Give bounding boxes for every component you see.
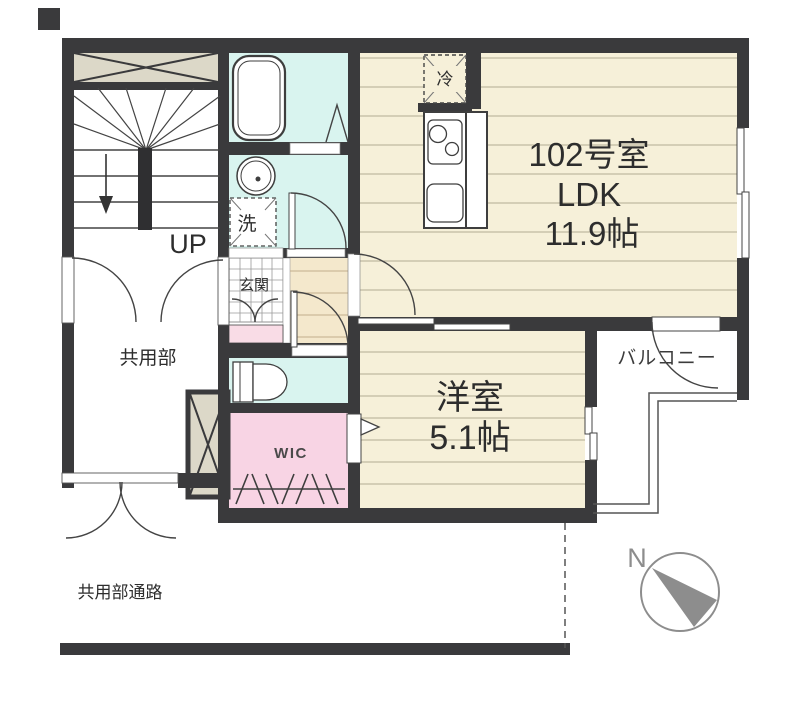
wall-bottom [218,508,597,523]
ldk-label: LDK [557,176,621,213]
shoe-cabinet [229,325,283,343]
wall-top [62,38,749,53]
stair-direction-arrow [99,196,113,214]
common-area-south-door-sill [62,473,178,483]
balcony-door-leaf [652,317,720,331]
sliding-door-panel-2 [434,324,510,330]
western-room-size-label: 5.1帖 [429,419,510,457]
ldk-size-label: 11.9帖 [545,215,640,252]
compass: N [627,543,719,631]
washroom-door-sill [287,249,345,257]
balcony-railing-inner [593,393,737,504]
balcony-label: バルコニー [617,348,717,369]
shafts [74,53,228,497]
toilet-tank [233,362,253,402]
wall-kitchen-stub [418,103,472,112]
common-south-door-arc-right [120,482,176,538]
western-room-label: 洋室 [436,379,504,417]
sliding-door-panel-1 [358,318,434,324]
staircase [74,88,220,230]
unit-front-door-opening [218,257,229,325]
washing-machine-label: 洗 [237,213,256,235]
floor-plan-page: N 102号室 LDK 11.9帖 洋室 5.1帖 バルコニー 共用部 共用部通… [0,0,800,705]
wic-label: WIC [274,445,308,462]
ldk-window-pane-2 [742,192,749,258]
vanity-sink-drain [256,177,261,182]
unit-front-door-arc [161,260,223,322]
toilet-bowl [253,364,287,400]
wall-toilet-bottom [229,403,348,413]
wall-common-bottom [178,473,218,488]
stairs-up-label: UP [169,229,207,259]
stair-winder-lines [74,88,220,150]
toilet-door-sill [292,345,347,356]
common-passage-label: 共用部通路 [78,583,163,602]
wall-duct-divider [70,82,223,90]
common-area-entry-opening [62,257,74,323]
vanity-sink [237,157,275,195]
wall-fridge-stub [466,41,481,109]
entrance-label: 玄関 [239,277,269,294]
western-window-pane-1 [585,407,592,434]
compass-needle [652,568,717,627]
kitchen-counter-edge [466,112,487,228]
room-number-label: 102号室 [528,136,649,173]
common-area-entry-door-arc [72,258,136,322]
bathroom-door-sill [290,143,340,154]
bathtub [233,56,285,140]
refrigerator-label: 冷 [437,70,454,89]
stair-center-rail [138,148,152,230]
common-south-door-arc-left [66,482,122,538]
wall-corner-pillar [38,8,60,30]
toilet-door-leaf [291,291,297,347]
ldk-window-pane-1 [737,128,744,194]
western-window-pane-2 [590,433,597,460]
ldk-door-opening [348,254,360,316]
washroom-door-leaf [289,193,295,249]
ldk-floor [360,53,737,317]
common-area-label: 共用部 [119,347,176,369]
balcony-railing-outer [593,401,737,513]
site-boundary-bar [60,643,570,655]
entrance-step [283,258,290,343]
entrance-sill [229,248,283,258]
wic-door-leaf [347,414,361,463]
kitchen-sink [427,184,463,222]
balcony-railing [593,393,737,513]
compass-north-label: N [627,543,647,573]
floor-plan-canvas: N 102号室 LDK 11.9帖 洋室 5.1帖 バルコニー 共用部 共用部通… [0,0,800,705]
